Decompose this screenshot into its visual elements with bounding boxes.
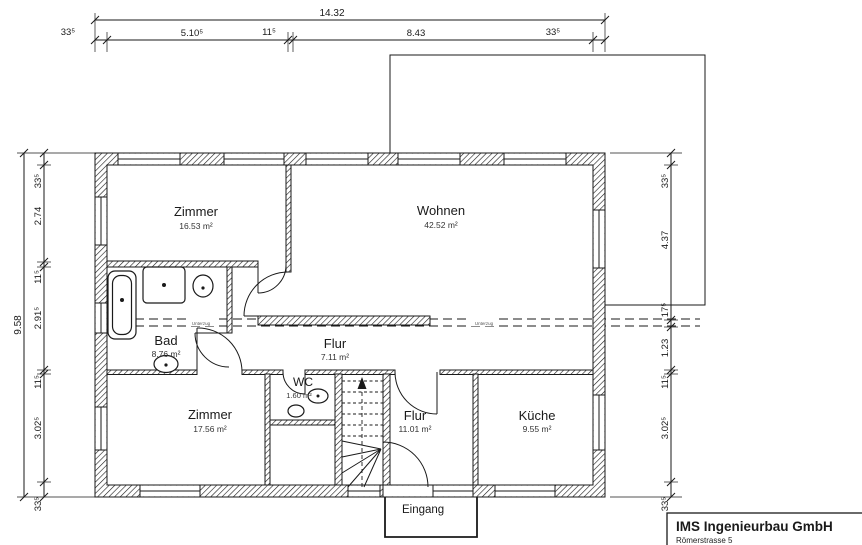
door-arc: [258, 265, 286, 293]
room-name: Zimmer: [174, 204, 219, 219]
company-name: IMS Ingenieurbau GmbH: [676, 519, 833, 534]
dim-label: 2.74: [33, 207, 44, 226]
room-area: 1.60 m²: [286, 391, 312, 400]
window: [140, 485, 200, 497]
room-name: Küche: [519, 408, 556, 423]
dim-label: 33⁵: [660, 497, 671, 512]
stair-direction-arrow: [358, 377, 367, 389]
window: [95, 197, 107, 245]
dim-label: 4.37: [660, 231, 671, 250]
window: [495, 485, 555, 497]
window: [593, 210, 605, 268]
room-label-zimmer1: Zimmer 16.53 m²: [174, 204, 219, 231]
unterzug-label: Unterzug: [192, 321, 211, 326]
sink: [193, 275, 213, 297]
entrance-porch: Eingang: [385, 497, 477, 537]
room-label-zimmer2: Zimmer 17.56 m²: [188, 407, 233, 434]
dim-label: 33⁵: [660, 174, 671, 189]
dimension-right: 33⁵ 4.37 17⁵ 1.23 11⁵ 3.02⁵ 33⁵: [610, 149, 682, 511]
dim-label: 3.02⁵: [660, 417, 671, 439]
dim-label: 3.02⁵: [33, 417, 44, 439]
room-label-bad: Bad 8.76 m²: [152, 333, 181, 359]
room-label-flur2: Flur 11.01 m²: [399, 408, 432, 434]
room-area: 42.52 m²: [424, 220, 458, 230]
dim-label: 11⁵: [33, 270, 44, 284]
dim-label: 1.23: [660, 339, 671, 358]
dim-label: 11⁵: [660, 375, 671, 389]
dim-label: 11⁵: [262, 27, 276, 38]
room-area: 8.76 m²: [152, 349, 181, 359]
floor-plan-canvas: Unterzug Unterzug: [0, 0, 862, 545]
room-area: 17.56 m²: [193, 424, 227, 434]
walls: [95, 153, 605, 497]
dim-label: 8.43: [407, 28, 426, 39]
window: [433, 485, 473, 497]
dim-overall-height: 9.58: [13, 315, 24, 335]
entrance-label: Eingang: [402, 504, 444, 516]
window: [95, 303, 107, 333]
window: [398, 153, 460, 165]
room-label-wohnen: Wohnen 42.52 m²: [417, 203, 465, 230]
door-arc: [244, 272, 288, 316]
upper-floor-outline: [390, 55, 705, 305]
unterzug-label: Unterzug: [475, 321, 494, 326]
dim-label: 33⁵: [546, 27, 561, 38]
room-area: 7.11 m²: [321, 352, 349, 362]
dimension-top: 14.32 33⁵ 5.10⁵ 11⁵ 8.43 33⁵: [61, 8, 609, 52]
dimension-left: 9.58 33⁵ 2.74 11⁵ 2.91⁵ 11⁵ 3.02⁵ 33⁵: [13, 149, 95, 511]
dim-label: 17⁵: [660, 303, 671, 318]
window: [118, 153, 180, 165]
bathtub: [108, 271, 136, 339]
dim-label: 11⁵: [33, 375, 44, 389]
dim-label: 33⁵: [33, 174, 44, 189]
window: [504, 153, 566, 165]
room-area: 9.55 m²: [523, 424, 552, 434]
title-block: IMS Ingenieurbau GmbH Römerstrasse 5: [667, 513, 862, 545]
room-name: Flur: [404, 408, 427, 423]
room-name: WC: [293, 375, 313, 389]
room-label-flur1: Flur 7.11 m²: [321, 336, 349, 362]
window: [593, 395, 605, 450]
staircase: [342, 377, 383, 487]
room-area: 16.53 m²: [179, 221, 213, 231]
window: [95, 407, 107, 450]
window: [306, 153, 368, 165]
wc-sink: [288, 405, 304, 417]
room-name: Bad: [154, 333, 177, 348]
room-label-wc: WC 1.60 m²: [286, 375, 313, 400]
room-name: Zimmer: [188, 407, 233, 422]
company-address: Römerstrasse 5: [676, 536, 733, 545]
dim-label: 33⁵: [33, 497, 44, 512]
room-name: Flur: [324, 336, 347, 351]
window: [224, 153, 284, 165]
dim-overall-width: 14.32: [319, 8, 344, 19]
entrance-opening: [383, 485, 433, 497]
dim-label: 2.91⁵: [33, 307, 44, 329]
door-arc: [195, 333, 229, 367]
dim-label: 5.10⁵: [181, 28, 203, 39]
floor-plan-drawing: Unterzug Unterzug: [0, 0, 862, 545]
room-area: 11.01 m²: [399, 424, 432, 434]
shower: [143, 267, 185, 303]
room-label-kueche: Küche 9.55 m²: [519, 408, 556, 434]
room-name: Wohnen: [417, 203, 465, 218]
dim-label: 33⁵: [61, 27, 76, 38]
